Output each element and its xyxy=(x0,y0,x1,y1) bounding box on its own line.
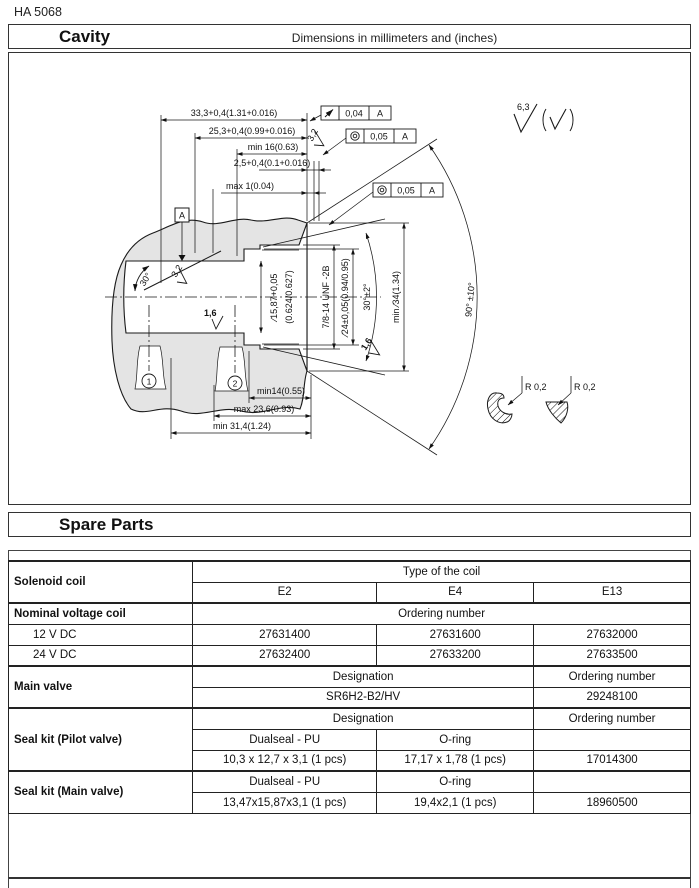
seal-main-ordering: 18960500 xyxy=(534,792,691,813)
cone-angle-label: 90° ±10° xyxy=(463,282,477,318)
seal-main-size-2: 19,4x2,1 (1 pcs) xyxy=(377,792,534,813)
seal-pilot-size-2: 17,17 x 1,78 (1 pcs) xyxy=(377,750,534,771)
voltage-24v-label: 24 V DC xyxy=(9,645,193,666)
radius-label-2: R 0,2 xyxy=(574,382,596,392)
callout-1-label: 1 xyxy=(147,377,152,387)
seal-main-size-1: 13,47x15,87x3,1 (1 pcs) xyxy=(193,792,377,813)
general-roughness-icon: 6,3 xyxy=(514,102,573,132)
seal-pilot-designation-header: Designation xyxy=(193,708,534,729)
dim-min314: min 31,4(1.24) xyxy=(213,421,271,431)
callout-2: 2 xyxy=(228,376,242,390)
seal-pilot-type-1: Dualseal - PU xyxy=(193,729,377,750)
seal-main-ordering-empty xyxy=(534,771,691,792)
spare-parts-header-band: Spare Parts xyxy=(8,512,691,537)
dim-max236: max 23,6(0.93) xyxy=(234,404,295,414)
seal-pilot-ordering-empty xyxy=(534,729,691,750)
fcf-runout-datum: A xyxy=(377,109,383,119)
order-24v-e13: 27633500 xyxy=(534,645,691,666)
table-row: Seal kit (Pilot valve) Designation Order… xyxy=(9,708,691,729)
main-valve-designation-header: Designation xyxy=(193,666,534,687)
callout-1: 1 xyxy=(142,374,156,388)
order-24v-e2: 27632400 xyxy=(193,645,377,666)
radius-detail-2: R 0,2 xyxy=(546,376,596,423)
dim-depth-total: 33,3+0,4(1.31+0.016) xyxy=(191,108,278,118)
radius-detail-1: R 0,2 xyxy=(487,376,546,423)
general-roughness-value: 6,3 xyxy=(517,102,530,112)
type-of-coil-header: Type of the coil xyxy=(193,561,691,582)
surface-finish-3-2-top-icon: 3,2 xyxy=(304,127,328,149)
spare-parts-table: Solenoid coil Type of the coil E2 E4 E13… xyxy=(8,560,691,814)
nominal-voltage-label: Nominal voltage coil xyxy=(9,603,193,624)
seal-kit-main-label: Seal kit (Main valve) xyxy=(9,771,193,813)
fcf-runout: 0,04 A xyxy=(310,106,391,121)
fcf-conc2-datum: A xyxy=(429,186,435,196)
cavity-drawing-box: 33,3+0,4(1.31+0.016) 25,3+0,4(0.99+0.016… xyxy=(8,52,691,505)
seal-pilot-type-2: O-ring xyxy=(377,729,534,750)
spotface-dia-label: min ∕34(1.34) xyxy=(391,271,401,323)
fcf-concentricity-2: 0,05 A xyxy=(329,183,443,225)
fcf-conc1-datum: A xyxy=(402,132,408,142)
cavity-header-band: Cavity Dimensions in millimeters and (in… xyxy=(8,24,691,49)
dim-chamfer-max: max 1(0.04) xyxy=(226,181,274,191)
spare-parts-box: Solenoid coil Type of the coil E2 E4 E13… xyxy=(8,550,691,877)
spare-parts-title: Spare Parts xyxy=(59,515,154,535)
dim-thread-min: min 16(0.63) xyxy=(248,142,299,152)
next-section-edge xyxy=(8,877,691,888)
order-12v-e13: 27632000 xyxy=(534,624,691,645)
order-12v-e2: 27631400 xyxy=(193,624,377,645)
coil-e4: E4 xyxy=(377,582,534,603)
surface-finish-1-6-left: 1,6 xyxy=(204,308,217,318)
dim-min14: min14(0.55) xyxy=(257,386,305,396)
bore-dim-mm: ∕15,87+0,05 xyxy=(269,274,279,323)
table-row: Seal kit (Main valve) Dualseal - PU O-ri… xyxy=(9,771,691,792)
dim-depth-thread: 25,3+0,4(0.99+0.016) xyxy=(209,126,296,136)
solenoid-coil-label: Solenoid coil xyxy=(9,561,193,603)
surface-finish-1-6-right: 1,6 xyxy=(359,336,374,352)
seal-main-type-1: Dualseal - PU xyxy=(193,771,377,792)
surface-finish-3-2-top: 3,2 xyxy=(305,127,320,143)
datum-a-label: A xyxy=(179,211,185,221)
seal-kit-pilot-label: Seal kit (Pilot valve) xyxy=(9,708,193,771)
seal-pilot-ordering: 17014300 xyxy=(534,750,691,771)
dim-spotface-depth: 2,5+0,4(0.1+0.016) xyxy=(234,158,311,168)
cavity-drawing: 33,3+0,4(1.31+0.016) 25,3+0,4(0.99+0.016… xyxy=(9,53,690,503)
fcf-concentricity-1: 0,05 A xyxy=(323,129,416,155)
order-24v-e4: 27633200 xyxy=(377,645,534,666)
callout-2-label: 2 xyxy=(233,379,238,389)
voltage-12v-label: 12 V DC xyxy=(9,624,193,645)
order-12v-e4: 27631600 xyxy=(377,624,534,645)
table-row: 12 V DC 27631400 27631600 27632000 xyxy=(9,624,691,645)
surface-finish-1-6-right-icon: 1,6 xyxy=(359,336,384,358)
table-row: Nominal voltage coil Ordering number xyxy=(9,603,691,624)
seal-bore-label: ∕24±0,05(0.94/0.95) xyxy=(340,258,350,338)
coil-e13: E13 xyxy=(534,582,691,603)
table-row: 24 V DC 27632400 27633200 27633500 xyxy=(9,645,691,666)
fcf-conc2-value: 0,05 xyxy=(397,186,415,196)
bore-dim-in: (0.624/0.627) xyxy=(284,270,294,324)
main-valve-label: Main valve xyxy=(9,666,193,708)
doc-number: HA 5068 xyxy=(14,5,62,19)
radius-label-1: R 0,2 xyxy=(525,382,547,392)
ordering-number-header: Ordering number xyxy=(193,603,691,624)
fcf-conc1-value: 0,05 xyxy=(370,132,388,142)
main-valve-designation: SR6H2-B2/HV xyxy=(193,687,534,708)
cavity-subtitle: Dimensions in millimeters and (inches) xyxy=(9,31,690,45)
main-valve-ordering-header: Ordering number xyxy=(534,666,691,687)
table-row: Main valve Designation Ordering number xyxy=(9,666,691,687)
seat-angle-label: 30°±2° xyxy=(362,283,372,311)
coil-e2: E2 xyxy=(193,582,377,603)
seal-pilot-ordering-header: Ordering number xyxy=(534,708,691,729)
main-valve-ordering: 29248100 xyxy=(534,687,691,708)
fcf-runout-value: 0,04 xyxy=(345,109,363,119)
seal-pilot-size-1: 10,3 x 12,7 x 3,1 (1 pcs) xyxy=(193,750,377,771)
table-row: Solenoid coil Type of the coil xyxy=(9,561,691,582)
seal-main-type-2: O-ring xyxy=(377,771,534,792)
thread-label: 7/8-14 UNF -2B xyxy=(321,265,331,328)
